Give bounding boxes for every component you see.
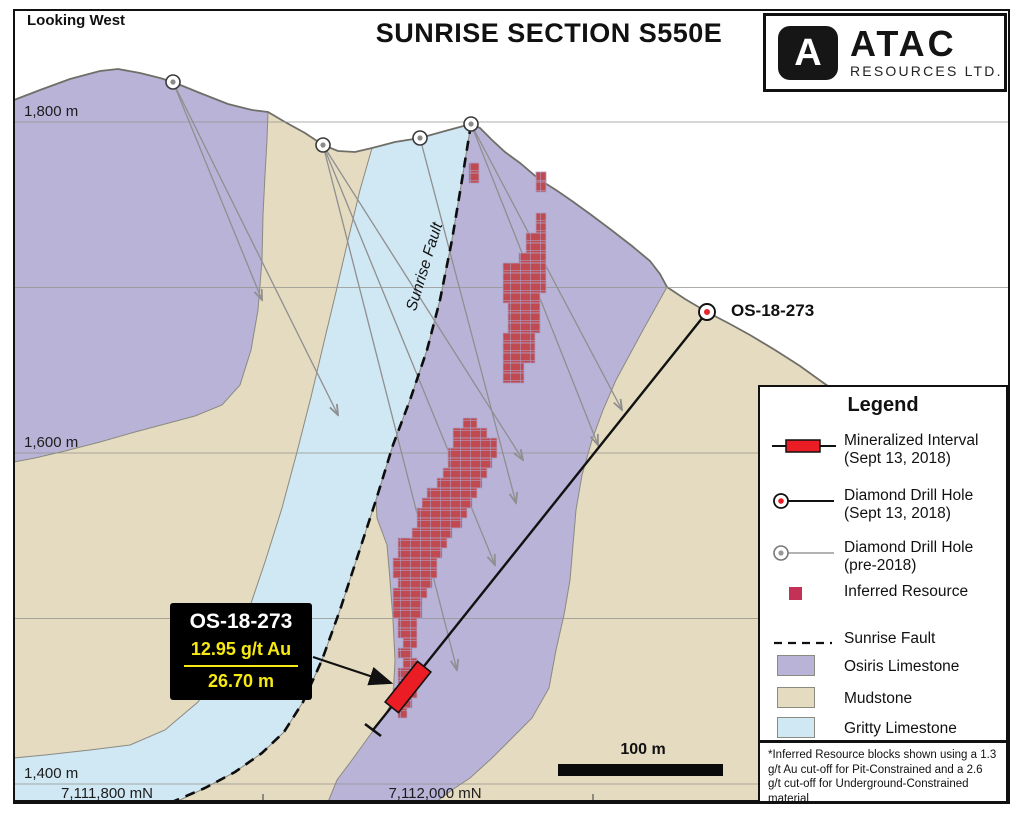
resource-block-row xyxy=(398,648,412,658)
resource-block-row xyxy=(453,428,487,438)
resource-block-row xyxy=(398,628,417,638)
northing-label-7112000: 7,112,000 mN xyxy=(388,785,481,802)
resource-block-row xyxy=(508,313,540,323)
legend-label-2: (Sept 13, 2018) xyxy=(844,505,973,523)
resource-block-row xyxy=(453,438,497,448)
mudstone-swatch xyxy=(777,687,815,708)
legend-label-2: (pre-2018) xyxy=(844,557,973,575)
resource-block-row xyxy=(412,528,452,538)
gritty-swatch xyxy=(777,717,815,738)
callout-interval: 26.70 m xyxy=(170,671,312,692)
pre-2018-collar-dot xyxy=(170,79,175,84)
scale-bar xyxy=(558,764,723,776)
resource-block-row xyxy=(393,598,422,608)
resource-block-row xyxy=(503,343,535,353)
atac-logo: A ATAC RESOURCES LTD. xyxy=(763,13,1007,92)
legend-label: Diamond Drill Hole xyxy=(844,539,973,557)
pre-2018-collar-dot xyxy=(468,121,473,126)
resource-block-row xyxy=(417,508,467,518)
resource-block-row xyxy=(503,283,546,293)
atac-logo-name: ATAC xyxy=(850,26,1003,62)
legend-footnote: *Inferred Resource blocks shown using a … xyxy=(758,742,1008,803)
northing-label-7111800: 7,111,800 mN xyxy=(61,785,153,802)
resource-block-row xyxy=(526,243,546,253)
resource-block-row xyxy=(469,173,479,183)
view-direction-label: Looking West xyxy=(27,12,125,29)
atac-logo-mark-icon: A xyxy=(778,26,838,80)
legend: Legend Mineralized Interval (Sept 13, 20… xyxy=(758,385,1008,742)
resource-block-row xyxy=(503,273,546,283)
resource-block-row xyxy=(403,638,417,648)
legend-label: Gritty Limestone xyxy=(844,720,957,738)
elevation-label-1600: 1,600 m xyxy=(24,434,78,451)
elevation-label-1800: 1,800 m xyxy=(24,103,78,120)
legend-label-2: (Sept 13, 2018) xyxy=(844,450,978,468)
atac-logo-letter: A xyxy=(794,34,821,72)
resource-block-row xyxy=(393,558,437,568)
resource-block-row xyxy=(508,323,540,333)
resource-block-row xyxy=(393,588,427,598)
legend-label: Mineralized Interval xyxy=(844,432,978,450)
legend-title: Legend xyxy=(760,394,1006,417)
callout-hole-id: OS-18-273 xyxy=(170,610,312,634)
resource-block-row xyxy=(398,548,442,558)
resource-block-row xyxy=(503,263,546,273)
atac-logo-subtitle: RESOURCES LTD. xyxy=(850,63,1003,79)
inferred-resource-icon xyxy=(789,587,802,600)
intercept-callout: OS-18-273 12.95 g/t Au 26.70 m xyxy=(170,603,312,700)
resource-block-row xyxy=(422,498,472,508)
resource-block-row xyxy=(443,468,487,478)
legend-label: Inferred Resource xyxy=(844,583,968,601)
resource-block-row xyxy=(393,608,422,618)
fault-line-icon xyxy=(772,636,836,650)
os-18-273-collar-dot xyxy=(704,309,710,315)
resource-block-row xyxy=(437,478,482,488)
resource-block-row xyxy=(398,538,447,548)
resource-block-row xyxy=(398,578,432,588)
section-title: SUNRISE SECTION S550E xyxy=(376,18,723,49)
resource-block-row xyxy=(508,303,540,313)
resource-block-row xyxy=(536,182,546,192)
resource-block-row xyxy=(519,253,546,263)
resource-block-row xyxy=(536,172,546,182)
callout-divider xyxy=(184,665,298,667)
callout-grade: 12.95 g/t Au xyxy=(170,639,312,660)
resource-block-row xyxy=(503,353,535,363)
mineralized-interval-icon xyxy=(772,438,836,454)
legend-label: Diamond Drill Hole xyxy=(844,487,973,505)
pre-2018-collar-dot xyxy=(320,142,325,147)
resource-block-row xyxy=(448,458,492,468)
resource-block-row xyxy=(393,568,437,578)
resource-block-row xyxy=(503,373,524,383)
resource-block-row xyxy=(469,163,479,173)
osiris-swatch xyxy=(777,655,815,676)
legend-label: Sunrise Fault xyxy=(844,630,935,648)
resource-block-row xyxy=(503,333,535,343)
resource-block-row xyxy=(536,223,546,233)
drillhole-collar-label: OS-18-273 xyxy=(731,301,814,321)
resource-block-row xyxy=(448,448,497,458)
resource-block-row xyxy=(398,618,417,628)
legend-label: Mudstone xyxy=(844,690,912,708)
resource-block-row xyxy=(463,418,477,428)
resource-block-row xyxy=(417,518,462,528)
scale-bar-label: 100 m xyxy=(620,741,665,759)
section-figure: Sunrise Fault Looking West SUNRISE SECTI… xyxy=(0,0,1024,813)
diamond-drill-hole-pre2018-icon xyxy=(772,544,836,562)
elevation-label-1400: 1,400 m xyxy=(24,765,78,782)
resource-block-row xyxy=(536,213,546,223)
resource-block-row xyxy=(503,363,524,373)
legend-label: Osiris Limestone xyxy=(844,658,959,676)
diamond-drill-hole-2018-icon xyxy=(772,492,836,510)
pre-2018-collar-dot xyxy=(417,135,422,140)
resource-block-row xyxy=(427,488,477,498)
resource-block-row xyxy=(526,233,546,243)
resource-block-row xyxy=(503,293,540,303)
